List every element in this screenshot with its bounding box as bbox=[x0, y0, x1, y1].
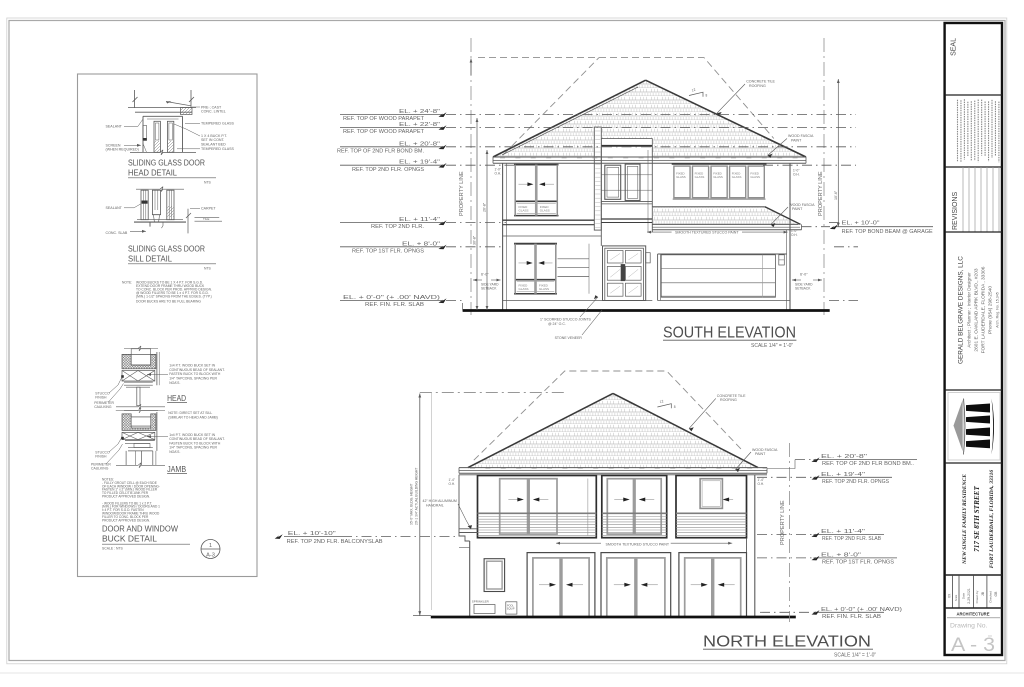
svg-text:O.H.: O.H. bbox=[495, 171, 502, 175]
svg-text:(SIMILAR TO HEAD AND JAMB): (SIMILAR TO HEAD AND JAMB) bbox=[168, 416, 218, 420]
svg-text:PROPERTY LINE: PROPERTY LINE bbox=[818, 171, 824, 216]
svg-text:O.H.: O.H. bbox=[791, 233, 798, 237]
svg-text:GERALD BELGRAVE DESIGNS, LL: GERALD BELGRAVE DESIGNS, LLC bbox=[958, 256, 965, 364]
svg-text:2-29-2021: 2-29-2021 bbox=[967, 588, 971, 604]
svg-text:DOOR BUCKS ARE TO BE FULL BEAR: DOOR BUCKS ARE TO BE FULL BEARING bbox=[136, 300, 201, 304]
svg-text:O.H.: O.H. bbox=[449, 482, 456, 486]
svg-text:6'-0": 6'-0" bbox=[481, 273, 489, 277]
svg-text:Architect ; Planner ; Inte: Architect ; Planner ; Interior Designer bbox=[967, 272, 972, 348]
svg-text:REF. TOP 2ND FLR. SLAB: REF. TOP 2ND FLR. SLAB bbox=[822, 536, 882, 542]
svg-text:SEALANT: SEALANT bbox=[106, 125, 123, 129]
svg-text:@ 24" O.C.: @ 24" O.C. bbox=[548, 322, 566, 326]
svg-text:TEMPERED GLASS: TEMPERED GLASS bbox=[201, 147, 235, 151]
svg-text:30'-8": 30'-8" bbox=[473, 235, 477, 245]
svg-text:6'-0": 6'-0" bbox=[800, 273, 808, 277]
svg-text:ROOFING: ROOFING bbox=[720, 398, 737, 402]
svg-text:O.H.: O.H. bbox=[793, 172, 800, 176]
svg-text:SPRINKLER: SPRINKLER bbox=[472, 599, 490, 603]
svg-text:REF. TOP OF WOOD PARAPET: REF. TOP OF WOOD PARAPET bbox=[343, 129, 424, 135]
svg-text:SMOOTH TEXTURED STUCCO PAINT: SMOOTH TEXTURED STUCCO PAINT bbox=[606, 542, 670, 546]
svg-text:SCALE 1/4" = 1'-0": SCALE 1/4" = 1'-0" bbox=[751, 343, 793, 349]
svg-text:BUCK DETAIL: BUCK DETAIL bbox=[102, 534, 157, 544]
svg-text:NOA'S.: NOA'S. bbox=[169, 381, 180, 385]
svg-text:FINISH: FINISH bbox=[95, 455, 107, 459]
svg-text:FORT LAUDERDALE, FLORIDA, 3331: FORT LAUDERDALE, FLORIDA, 33316 bbox=[989, 470, 995, 569]
svg-text:REF. FIN. FLR. SLAB: REF. FIN. FLR. SLAB bbox=[822, 614, 882, 620]
svg-text:CONC. SLAB: CONC. SLAB bbox=[106, 231, 128, 235]
svg-text:A - 3: A - 3 bbox=[951, 635, 995, 656]
svg-text:GLASS: GLASS bbox=[519, 209, 529, 213]
svg-text:1: 1 bbox=[209, 543, 212, 549]
svg-text:REF. TOP 2ND FLR. OPNGS: REF. TOP 2ND FLR. OPNGS bbox=[352, 167, 425, 173]
svg-text:SCALE : NTS: SCALE : NTS bbox=[102, 547, 123, 551]
svg-text:PRODUCT APPROVED DESIGN.: PRODUCT APPROVED DESIGN. bbox=[102, 495, 150, 499]
svg-text:(WHEN REQUIRED): (WHEN REQUIRED) bbox=[106, 148, 139, 152]
svg-text:STONE VENEER: STONE VENEER bbox=[555, 336, 583, 340]
svg-text:REF. TOP BOND BEAM @ GARA: REF. TOP BOND BEAM @ GARAGE bbox=[842, 229, 934, 235]
svg-text:NORTH ELEVATION: NORTH ELEVATION bbox=[703, 634, 871, 651]
svg-text:GLASS: GLASS bbox=[750, 175, 760, 179]
svg-text:GLASS: GLASS bbox=[519, 287, 529, 291]
svg-text:PAINT: PAINT bbox=[791, 139, 802, 143]
svg-text:A-3: A-3 bbox=[206, 553, 215, 559]
svg-text:SILL DETAIL: SILL DETAIL bbox=[128, 254, 172, 264]
svg-text:CAULKING: CAULKING bbox=[91, 467, 109, 471]
svg-text:REF. FIN. FLR. SLAB: REF. FIN. FLR. SLAB bbox=[365, 302, 425, 308]
svg-text:GLASS: GLASS bbox=[539, 287, 549, 291]
svg-text:ARCHITECTURE: ARCHITECTURE bbox=[956, 611, 989, 616]
svg-text:EL. + 10'-0": EL. + 10'-0" bbox=[842, 220, 880, 226]
svg-text:Scale: Scale bbox=[954, 594, 958, 601]
svg-text:NOA'S.: NOA'S. bbox=[169, 450, 180, 454]
svg-text:GLASS: GLASS bbox=[713, 175, 723, 179]
svg-text:REF. TOP OF 2ND FLR BOND BM..: REF. TOP OF 2ND FLR BOND BM.. bbox=[822, 461, 914, 467]
svg-text:PRODUCT APPROVED DESIGN.: PRODUCT APPROVED DESIGN. bbox=[102, 518, 150, 522]
svg-text:NEW SINGLE FAMILY RESIDENCE: NEW SINGLE FAMILY RESIDENCE bbox=[962, 474, 968, 565]
svg-text:REF. TOP 1ST FLR. OPNGS: REF. TOP 1ST FLR. OPNGS bbox=[352, 248, 425, 254]
svg-text:8: 8 bbox=[674, 405, 676, 409]
svg-text:Phone (954) 298-2540: Phone (954) 298-2540 bbox=[988, 286, 994, 334]
svg-text:GLASS: GLASS bbox=[676, 175, 686, 179]
svg-text:O.H.: O.H. bbox=[758, 482, 765, 486]
svg-text:717 SE 8TH STREET: 717 SE 8TH STREET bbox=[973, 486, 981, 552]
svg-text:XX: XX bbox=[948, 593, 952, 598]
svg-text:GLASS: GLASS bbox=[695, 175, 705, 179]
svg-text:HEAD: HEAD bbox=[167, 393, 186, 403]
svg-text:ROOFING: ROOFING bbox=[749, 84, 766, 88]
svg-text:xx: xx bbox=[988, 633, 992, 638]
svg-text:FORT LAUDERDALE, FLORIDA ,: FORT LAUDERDALE, FLORIDA , 33306 bbox=[981, 266, 987, 353]
svg-text:PAINT: PAINT bbox=[755, 452, 766, 456]
svg-text:NTS: NTS bbox=[204, 181, 212, 185]
svg-text:GLASS: GLASS bbox=[732, 175, 742, 179]
svg-text:20'-1 3/4" ACTUAL BUILDING HEI: 20'-1 3/4" ACTUAL BUILDING HEIGHT bbox=[415, 468, 419, 525]
svg-text:PAINT: PAINT bbox=[792, 207, 803, 211]
svg-text:GB: GB bbox=[994, 591, 998, 597]
svg-text:(MIN.) 1-1/2" SPACING FROM THE: (MIN.) 1-1/2" SPACING FROM THE EDGES. (T… bbox=[136, 295, 212, 299]
svg-text:HANDRAIL: HANDRAIL bbox=[426, 504, 444, 508]
svg-text:Drawn by: Drawn by bbox=[975, 590, 979, 603]
svg-text:EQUIP: EQUIP bbox=[507, 608, 515, 611]
svg-text:REF. TOP 1ST FLR. OPNGS: REF. TOP 1ST FLR. OPNGS bbox=[822, 560, 895, 566]
svg-text:REF. TOP 2ND FLR. BALCONYSLAB: REF. TOP 2ND FLR. BALCONYSLAB bbox=[287, 539, 384, 545]
svg-text:CAULKING: CAULKING bbox=[94, 405, 112, 409]
svg-text:SLIDING GLASS DOOR: SLIDING GLASS DOOR bbox=[128, 158, 205, 168]
svg-text:JAMB: JAMB bbox=[167, 464, 186, 474]
svg-text:Checked: Checked bbox=[989, 591, 993, 603]
svg-text:HEAD DETAIL: HEAD DETAIL bbox=[128, 168, 177, 178]
svg-text:Drawing No.: Drawing No. bbox=[950, 623, 988, 630]
svg-text:DOOR AND WINDOW: DOOR AND WINDOW bbox=[102, 524, 179, 534]
svg-text:NOTE:: NOTE: bbox=[122, 281, 132, 285]
svg-text:GLASS: GLASS bbox=[540, 209, 550, 213]
svg-text:10'-6": 10'-6" bbox=[834, 190, 838, 200]
svg-text:PROPERTY LINE: PROPERTY LINE bbox=[459, 171, 465, 216]
svg-text:SOUTH ELEVATION: SOUTH ELEVATION bbox=[663, 325, 796, 342]
svg-text:REF. TOP 2ND FLR. OPNGS: REF. TOP 2ND FLR. OPNGS bbox=[822, 479, 890, 485]
svg-text:SEALANT: SEALANT bbox=[106, 206, 123, 210]
svg-text:REF. TOP 2ND FLR.: REF. TOP 2ND FLR. bbox=[371, 224, 424, 230]
svg-text:FINISH: FINISH bbox=[95, 396, 107, 400]
svg-text:35'-0" MAX. BLDG. HEIGHT: 35'-0" MAX. BLDG. HEIGHT bbox=[410, 483, 414, 525]
svg-text:TILE: TILE bbox=[203, 217, 209, 221]
svg-text:SLIDING GLASS DOOR: SLIDING GLASS DOOR bbox=[128, 244, 205, 254]
svg-text:Date: Date bbox=[962, 593, 966, 600]
svg-text:SMOOTH TEXTURED STUCCO PAINT: SMOOTH TEXTURED STUCCO PAINT bbox=[675, 231, 739, 235]
svg-text:SEALANT BED: SEALANT BED bbox=[201, 142, 226, 146]
svg-text:TEMPERED GLASS: TEMPERED GLASS bbox=[201, 122, 235, 126]
svg-text:8: 8 bbox=[706, 94, 708, 98]
svg-text:2601 E. OAKLAND APRK BLVD.: 2601 E. OAKLAND APRK BLVD., #203 bbox=[974, 268, 980, 351]
svg-text:SETBACK: SETBACK bbox=[481, 286, 497, 290]
svg-text:CONC. LINTEL: CONC. LINTEL bbox=[201, 110, 226, 114]
svg-text:SETBACK: SETBACK bbox=[795, 286, 811, 290]
svg-text:CARPET: CARPET bbox=[201, 207, 216, 211]
svg-text:PROPERTY LINE: PROPERTY LINE bbox=[780, 500, 786, 545]
svg-text:NTS: NTS bbox=[204, 267, 212, 271]
svg-text:SCALE 1/4" = 1'-0": SCALE 1/4" = 1'-0" bbox=[834, 652, 876, 658]
svg-text:Arch. Reg. No. 15,345: Arch. Reg. No. 15,345 bbox=[996, 292, 1000, 328]
svg-text:REVISIONS: REVISIONS bbox=[952, 192, 959, 230]
svg-text:REF. TOP OF 2ND FLR BOND BM.: REF. TOP OF 2ND FLR BOND BM. bbox=[337, 148, 424, 154]
svg-text:SEAL: SEAL bbox=[951, 38, 958, 56]
svg-text:26'-8": 26'-8" bbox=[483, 202, 487, 212]
